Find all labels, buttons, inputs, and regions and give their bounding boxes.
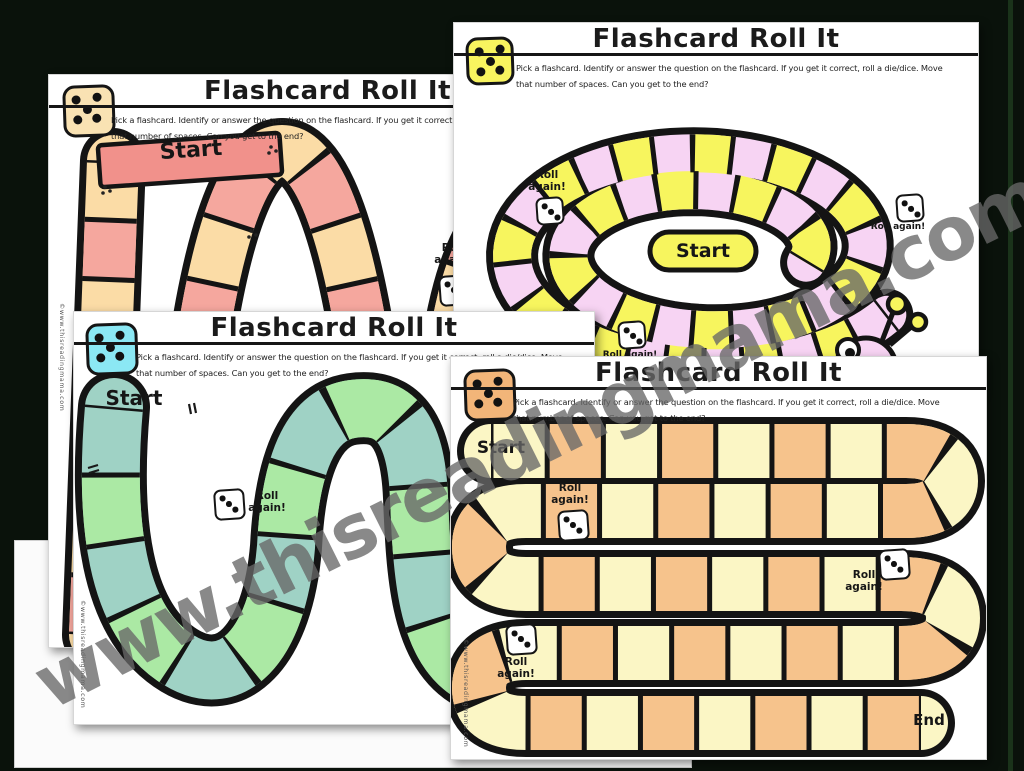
roll-again-label: Rollagain!	[524, 169, 570, 193]
page-title: Flashcard Roll It	[454, 24, 978, 54]
roll-again-label: Rollagain!	[493, 656, 539, 680]
roll-again-die-icon	[213, 488, 246, 521]
roll-again-die-icon	[505, 623, 538, 656]
roll-again-label: Roll again!	[864, 221, 932, 233]
instructions: Pick a flashcard. Identify or answer the…	[516, 60, 978, 92]
copyright-strip: ©www.thisreadingmama.com	[58, 303, 65, 411]
page-orange-serpentine: Flashcard Roll It Pick a flashcard. Iden…	[450, 356, 987, 760]
composite-preview: { "background": {"color": "#0a120b", "ac…	[0, 0, 1024, 771]
roll-again-die-icon	[557, 509, 590, 542]
copyright-strip: ©www.thisreadingmama.com	[462, 639, 469, 747]
start-label: Start	[650, 232, 756, 270]
copyright-strip: ©www.thisreadingmama.com	[79, 600, 86, 708]
page-title: Flashcard Roll It	[74, 313, 594, 343]
end-label: End	[899, 714, 959, 726]
title-rule	[451, 387, 986, 390]
start-label: Start	[98, 392, 170, 404]
roll-again-label: Rollagain!	[841, 569, 887, 593]
instructions: Pick a flashcard. Identify or answer the…	[513, 394, 975, 426]
border-accent-stripe	[1008, 0, 1013, 771]
roll-again-die-icon	[895, 193, 925, 223]
title-rule	[74, 342, 594, 345]
roll-again-label: Rollagain!	[244, 490, 290, 514]
page-title: Flashcard Roll It	[451, 358, 986, 388]
roll-again-die-icon	[617, 320, 647, 350]
roll-again-die-icon	[535, 196, 565, 226]
start-label: Start	[463, 442, 539, 454]
roll-again-label: Rollagain!	[547, 482, 593, 506]
title-rule	[454, 53, 978, 56]
